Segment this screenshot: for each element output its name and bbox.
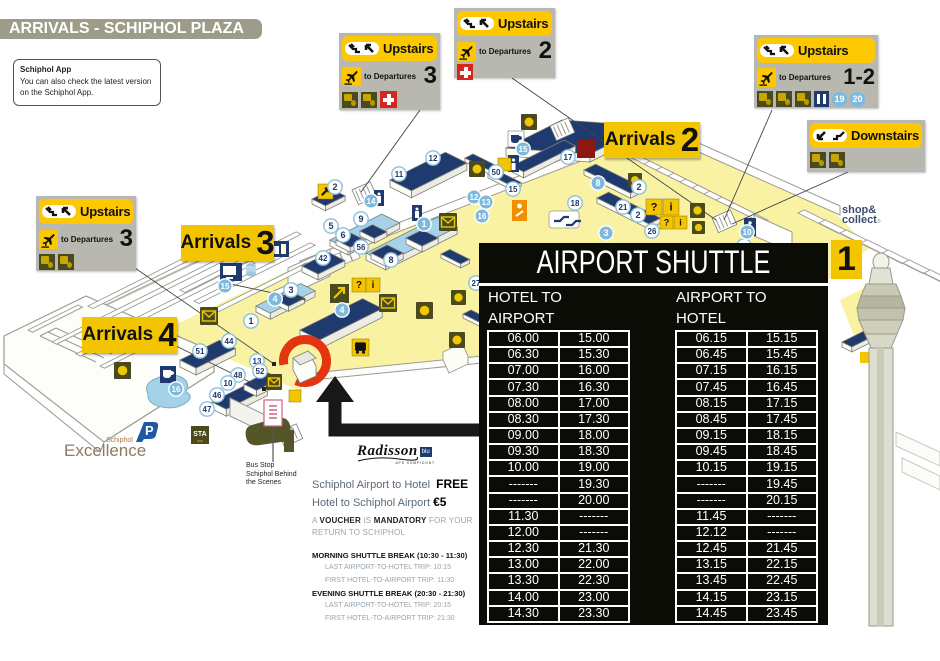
svg-text:2: 2 (636, 182, 641, 192)
svg-text:46: 46 (213, 391, 222, 400)
svg-text:51: 51 (196, 347, 205, 356)
svg-text:56: 56 (357, 243, 366, 252)
svg-text:8: 8 (388, 255, 393, 265)
svg-text:1: 1 (421, 219, 426, 229)
svg-text:i: i (679, 217, 682, 227)
svg-text:4: 4 (272, 294, 277, 304)
svg-text:8: 8 (595, 178, 600, 188)
svg-text:5: 5 (328, 221, 333, 231)
svg-text:21: 21 (619, 203, 628, 212)
svg-text:44: 44 (225, 337, 234, 346)
svg-text:1: 1 (248, 316, 253, 326)
svg-text:14: 14 (367, 197, 376, 206)
svg-text:15: 15 (509, 185, 518, 194)
svg-text:18: 18 (571, 199, 580, 208)
svg-text:?: ? (664, 217, 670, 227)
svg-text:15: 15 (221, 282, 230, 291)
svg-text:P: P (145, 423, 154, 438)
svg-text:16: 16 (478, 212, 487, 221)
svg-text:10: 10 (743, 228, 752, 237)
svg-text:i: i (669, 202, 672, 214)
svg-text:12: 12 (470, 193, 479, 202)
svg-text:xxx: xxx (197, 438, 203, 443)
svg-text:i: i (372, 280, 375, 291)
svg-text:52: 52 (256, 367, 265, 376)
svg-text:6: 6 (340, 230, 345, 240)
svg-text:4: 4 (339, 305, 344, 315)
svg-text:42: 42 (319, 254, 328, 263)
svg-text:2: 2 (635, 210, 640, 220)
svg-text:STA: STA (193, 431, 206, 438)
svg-text:50: 50 (492, 168, 501, 177)
svg-text:9: 9 (358, 214, 363, 224)
svg-text:15: 15 (519, 145, 528, 154)
svg-text:?: ? (356, 280, 362, 291)
svg-text:10: 10 (224, 379, 233, 388)
svg-text:2: 2 (332, 182, 337, 192)
svg-text:3: 3 (288, 285, 293, 295)
svg-text:13: 13 (482, 198, 491, 207)
svg-text:47: 47 (203, 405, 212, 414)
svg-text:16: 16 (172, 385, 181, 394)
svg-text:?: ? (651, 202, 658, 214)
svg-text:17: 17 (564, 153, 573, 162)
svg-text:48: 48 (234, 371, 243, 380)
svg-text:11: 11 (395, 170, 404, 179)
svg-text:12: 12 (429, 154, 438, 163)
svg-text:3: 3 (603, 228, 608, 238)
svg-text:26: 26 (648, 227, 657, 236)
